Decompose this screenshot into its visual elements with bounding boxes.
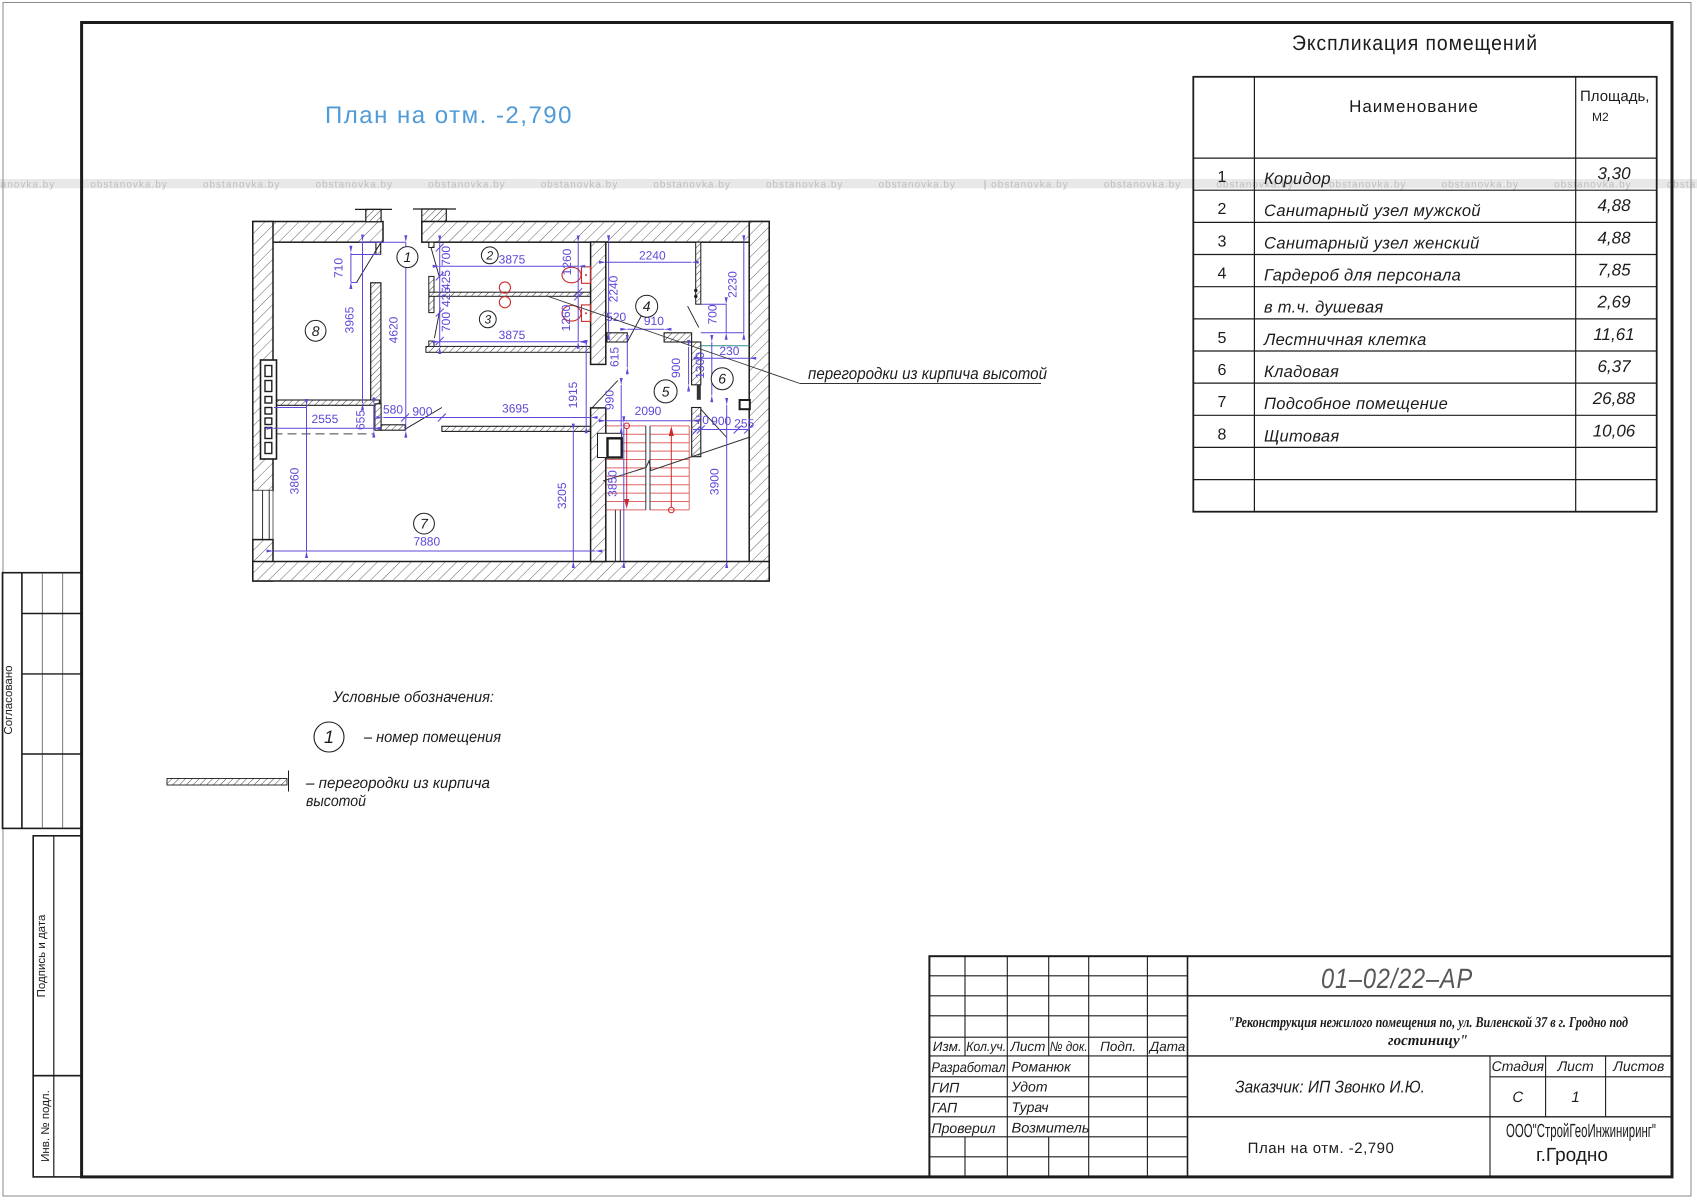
svg-text:6: 6 bbox=[718, 371, 726, 387]
svg-text:obstanovka.by: obstanovka.by bbox=[0, 179, 55, 190]
svg-text:высотой: высотой bbox=[306, 793, 366, 810]
svg-text:2240: 2240 bbox=[607, 275, 621, 302]
svg-text:70: 70 bbox=[696, 413, 710, 427]
svg-text:6,37: 6,37 bbox=[1597, 357, 1631, 376]
svg-text:2: 2 bbox=[1218, 201, 1227, 218]
svg-text:Проверил: Проверил bbox=[932, 1120, 996, 1136]
svg-text:4,88: 4,88 bbox=[1597, 196, 1631, 215]
svg-text:Лестничная клетка: Лестничная клетка bbox=[1263, 331, 1427, 349]
svg-text:Подп.: Подп. bbox=[1100, 1039, 1136, 1054]
svg-text:Возмитель: Возмитель bbox=[1012, 1120, 1090, 1136]
svg-text:3: 3 bbox=[1218, 233, 1227, 250]
svg-text:– номер помещения: – номер помещения bbox=[363, 729, 501, 746]
svg-text:obstanovka.by: obstanovka.by bbox=[991, 179, 1069, 190]
svg-text:Площадь,: Площадь, bbox=[1580, 88, 1649, 105]
svg-text:Подпись и дата: Подпись и дата bbox=[36, 914, 48, 997]
svg-text:Гардероб для персонала: Гардероб для персонала bbox=[1264, 267, 1461, 285]
svg-text:Санитарный узел мужской: Санитарный узел мужской bbox=[1264, 202, 1481, 220]
svg-text:1: 1 bbox=[404, 249, 412, 265]
svg-text:Стадия: Стадия bbox=[1492, 1058, 1545, 1074]
svg-text:План на отм. -2,790: План на отм. -2,790 bbox=[1248, 1140, 1395, 1157]
svg-text:ООО"СтройГеоИнжиниринг": ООО"СтройГеоИнжиниринг" bbox=[1506, 1121, 1656, 1142]
svg-text:3875: 3875 bbox=[499, 328, 526, 342]
svg-text:в т.ч. душевая: в т.ч. душевая bbox=[1264, 299, 1384, 317]
svg-text:Инв. № подл.: Инв. № подл. bbox=[40, 1090, 52, 1162]
svg-text:Турач: Турач bbox=[1012, 1099, 1049, 1115]
svg-text:5: 5 bbox=[662, 383, 670, 399]
svg-text:700: 700 bbox=[706, 304, 720, 324]
svg-text:С: С bbox=[1512, 1089, 1523, 1106]
svg-text:3875: 3875 bbox=[499, 253, 526, 267]
svg-text:655: 655 bbox=[354, 410, 368, 430]
svg-text:3850: 3850 bbox=[606, 470, 620, 497]
svg-text:obstanovka.by: obstanovka.by bbox=[1104, 179, 1182, 190]
svg-text:obstanovka.by: obstanovka.by bbox=[428, 179, 506, 190]
svg-text:7: 7 bbox=[420, 516, 429, 532]
svg-text:8: 8 bbox=[312, 323, 320, 339]
svg-text:Заказчик: ИП Звонко И.Ю.: Заказчик: ИП Звонко И.Ю. bbox=[1235, 1078, 1425, 1097]
svg-text:3,30: 3,30 bbox=[1597, 164, 1631, 183]
svg-text:2240: 2240 bbox=[639, 249, 666, 263]
svg-text:4: 4 bbox=[1218, 266, 1227, 283]
svg-text:900: 900 bbox=[669, 358, 683, 378]
svg-text:ГАП: ГАП bbox=[932, 1100, 959, 1116]
svg-text:1260: 1260 bbox=[559, 304, 573, 331]
svg-text:"Реконструкция нежилого помеще: "Реконструкция нежилого помещения по, ул… bbox=[1228, 1015, 1628, 1031]
svg-text:Кладовая: Кладовая bbox=[1264, 363, 1339, 381]
svg-text:Изм.: Изм. bbox=[933, 1039, 962, 1054]
svg-text:ГИП: ГИП bbox=[932, 1079, 961, 1095]
svg-text:obstanovka.by: obstanovka.by bbox=[766, 179, 844, 190]
svg-text:obstanovka.by: obstanovka.by bbox=[203, 179, 281, 190]
svg-text:700: 700 bbox=[439, 312, 453, 332]
svg-text:6: 6 bbox=[1218, 362, 1227, 379]
svg-text:|: | bbox=[984, 179, 987, 190]
svg-text:М2: М2 bbox=[1592, 110, 1609, 124]
svg-text:3695: 3695 bbox=[502, 402, 529, 416]
svg-text:obstanovka.by: obstanovka.by bbox=[316, 179, 394, 190]
svg-text:7: 7 bbox=[1218, 394, 1227, 411]
svg-text:3: 3 bbox=[484, 313, 491, 327]
svg-text:Подсобное помещение: Подсобное помещение bbox=[1264, 395, 1448, 413]
svg-text:425: 425 bbox=[439, 287, 453, 307]
svg-text:425: 425 bbox=[439, 270, 453, 290]
svg-text:4620: 4620 bbox=[387, 316, 401, 343]
svg-text:5: 5 bbox=[1218, 330, 1227, 347]
svg-text:1300: 1300 bbox=[693, 352, 707, 379]
svg-text:7880: 7880 bbox=[413, 535, 440, 549]
svg-text:1260: 1260 bbox=[560, 248, 574, 275]
svg-text:2230: 2230 bbox=[726, 271, 740, 298]
svg-text:3860: 3860 bbox=[288, 467, 302, 494]
svg-text:4,88: 4,88 bbox=[1597, 228, 1631, 247]
svg-text:Лист: Лист bbox=[1557, 1058, 1594, 1074]
svg-text:3205: 3205 bbox=[555, 482, 569, 509]
svg-text:Коридор: Коридор bbox=[1264, 170, 1331, 188]
svg-text:1: 1 bbox=[1218, 169, 1227, 186]
svg-text:1: 1 bbox=[324, 727, 334, 747]
svg-text:900: 900 bbox=[711, 414, 731, 428]
svg-text:26,88: 26,88 bbox=[1592, 389, 1636, 408]
svg-text:700: 700 bbox=[439, 246, 453, 266]
svg-text:710: 710 bbox=[332, 258, 346, 278]
svg-text:1915: 1915 bbox=[566, 381, 580, 408]
svg-text:Санитарный узел женский: Санитарный узел женский bbox=[1264, 234, 1480, 252]
svg-text:520: 520 bbox=[606, 310, 626, 324]
svg-text:Условные обозначения:: Условные обозначения: bbox=[332, 689, 494, 706]
svg-text:580: 580 bbox=[383, 403, 403, 417]
svg-text:гостиницу": гостиницу" bbox=[1388, 1033, 1468, 1049]
svg-text:Романюк: Романюк bbox=[1012, 1059, 1073, 1075]
svg-text:2555: 2555 bbox=[312, 412, 339, 426]
svg-text:8: 8 bbox=[1218, 426, 1227, 443]
svg-text:2,69: 2,69 bbox=[1596, 293, 1631, 312]
svg-text:230: 230 bbox=[719, 344, 739, 358]
svg-text:obstanovka.by: obstanovka.by bbox=[653, 179, 731, 190]
svg-text:Кол.уч.: Кол.уч. bbox=[966, 1039, 1006, 1054]
svg-text:Согласовано: Согласовано bbox=[3, 665, 15, 734]
svg-text:2: 2 bbox=[485, 249, 493, 263]
svg-text:7,85: 7,85 bbox=[1597, 261, 1631, 280]
svg-text:1: 1 bbox=[1571, 1089, 1579, 1106]
svg-text:Лист: Лист bbox=[1010, 1039, 1046, 1054]
svg-text:255: 255 bbox=[734, 417, 754, 431]
svg-text:– перегородки из кирпича: – перегородки из кирпича bbox=[305, 775, 490, 792]
svg-text:obstanovka.by: obstanovka.by bbox=[1442, 179, 1520, 190]
svg-text:3965: 3965 bbox=[343, 306, 357, 333]
svg-text:obstanovka.by: obstanovka.by bbox=[541, 179, 619, 190]
svg-text:Удот: Удот bbox=[1011, 1079, 1048, 1095]
svg-text:№ док.: № док. bbox=[1050, 1039, 1088, 1054]
svg-text:перегородки из кирпича выс: перегородки из кирпича высотой bbox=[808, 365, 1047, 383]
svg-text:Листов: Листов bbox=[1612, 1058, 1664, 1074]
svg-text:01–02/22–АР: 01–02/22–АР bbox=[1321, 963, 1473, 994]
svg-text:obstanovka.by: obstanovka.by bbox=[1329, 179, 1407, 190]
svg-text:3900: 3900 bbox=[707, 468, 721, 495]
svg-text:900: 900 bbox=[412, 405, 432, 419]
svg-text:990: 990 bbox=[603, 390, 617, 410]
svg-text:615: 615 bbox=[608, 347, 622, 367]
svg-text:2090: 2090 bbox=[635, 404, 662, 418]
svg-text:Дата: Дата bbox=[1148, 1039, 1186, 1054]
svg-text:11,61: 11,61 bbox=[1593, 325, 1634, 344]
svg-text:10,06: 10,06 bbox=[1593, 421, 1636, 440]
svg-text:obstanovka.by: obstanovka.by bbox=[90, 179, 168, 190]
svg-text:4: 4 bbox=[643, 298, 651, 314]
svg-text:Разработал: Разработал bbox=[932, 1059, 1006, 1075]
svg-text:obstanovka.by: obstanovka.by bbox=[879, 179, 957, 190]
svg-text:Экспликация помещений: Экспликация помещений bbox=[1292, 32, 1538, 55]
svg-text:Наименование: Наименование bbox=[1349, 97, 1479, 116]
svg-text:План на отм. -2,790: План на отм. -2,790 bbox=[325, 102, 573, 129]
svg-text:г.Гродно: г.Гродно bbox=[1536, 1145, 1608, 1166]
svg-text:Щитовая: Щитовая bbox=[1264, 427, 1339, 445]
